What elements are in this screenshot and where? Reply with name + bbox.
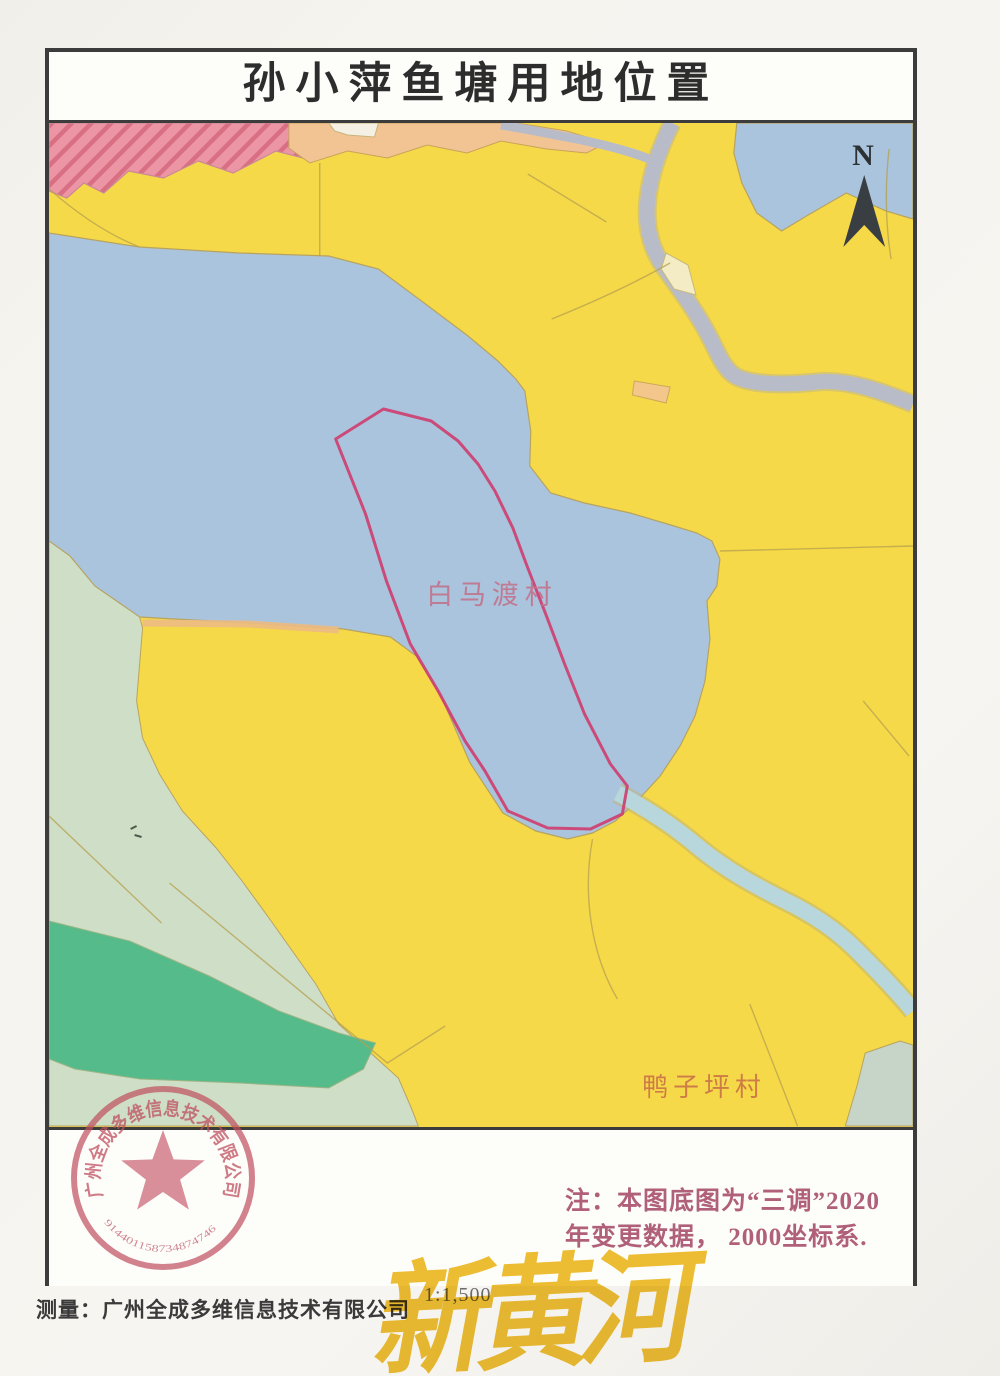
seal-star-icon	[121, 1130, 205, 1210]
seal-number-text: 914401158734874746	[101, 1217, 218, 1255]
news-watermark: 新黄河	[363, 1208, 682, 1376]
north-label: N	[852, 139, 874, 172]
map-canvas: 白马渡村 鸭子坪村 N	[49, 123, 913, 1127]
village-label-center: 白马渡村	[426, 580, 557, 610]
page-title: 孙小萍鱼塘用地位置	[49, 52, 913, 123]
surveyor-line: 测量：广州全成多维信息技术有限公司	[36, 1294, 410, 1324]
company-seal-stamp: 广州全成多维信息技术有限公司 914401158734874746	[50, 1062, 276, 1294]
svg-text:914401158734874746: 914401158734874746	[101, 1217, 218, 1255]
scanned-map-page: 孙小萍鱼塘用地位置	[0, 0, 1000, 1376]
map-area: 白马渡村 鸭子坪村 N	[49, 123, 913, 1130]
village-label-south: 鸭子坪村	[642, 1073, 765, 1102]
